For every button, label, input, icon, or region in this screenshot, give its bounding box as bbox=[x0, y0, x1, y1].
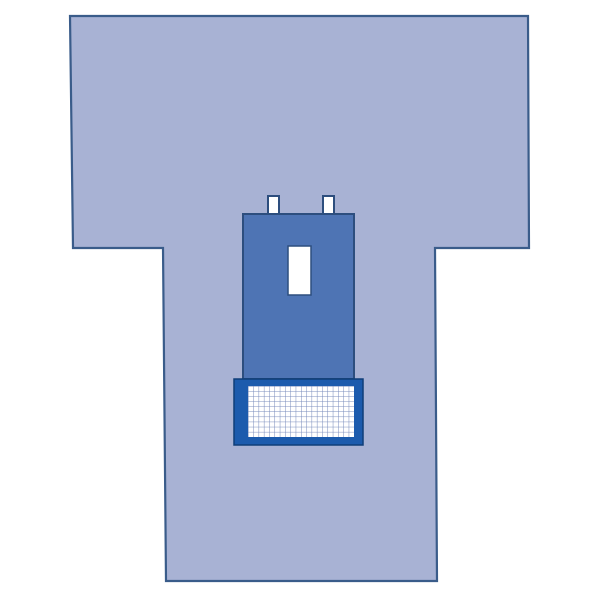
surgical-drape-figure bbox=[0, 0, 600, 600]
reinforcement-panel bbox=[243, 214, 354, 379]
pouch-grid-mesh bbox=[248, 386, 354, 437]
product-illustration bbox=[0, 0, 600, 600]
fenestration-opening bbox=[288, 246, 311, 295]
